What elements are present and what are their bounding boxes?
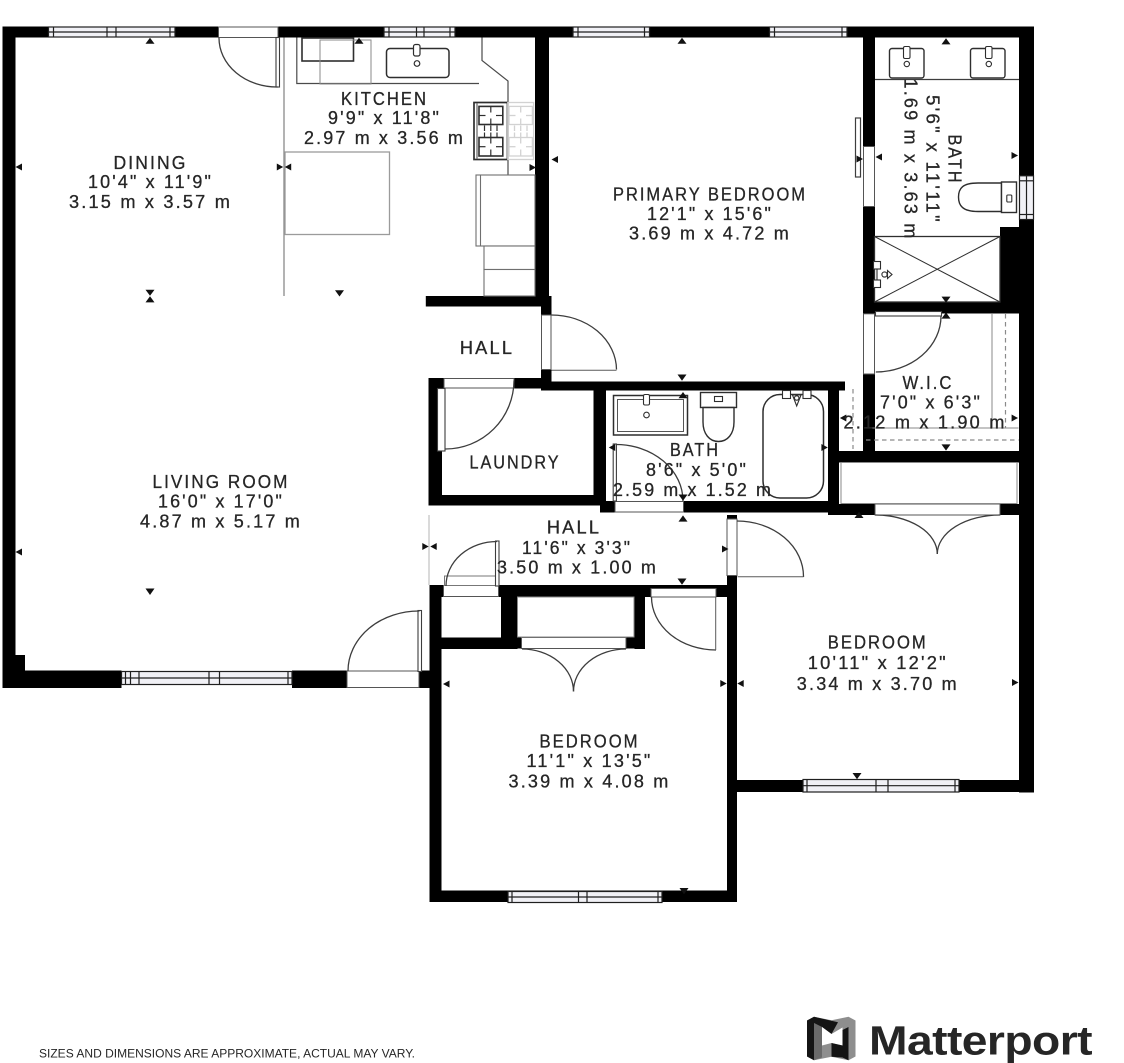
svg-text:LAUNDRY: LAUNDRY <box>470 452 561 472</box>
svg-text:W.I.C: W.I.C <box>903 373 954 393</box>
svg-text:BATH: BATH <box>670 440 720 460</box>
svg-text:BATH: BATH <box>945 135 965 185</box>
svg-text:Matterport: Matterport <box>869 1018 1093 1063</box>
svg-text:3.34 m x 3.70 m: 3.34 m x 3.70 m <box>797 674 959 694</box>
svg-text:9'9" x 11'8": 9'9" x 11'8" <box>328 108 441 128</box>
svg-text:3.69 m x 4.72 m: 3.69 m x 4.72 m <box>629 223 791 243</box>
svg-text:2.12 m x 1.90 m: 2.12 m x 1.90 m <box>844 412 1007 432</box>
svg-text:KITCHEN: KITCHEN <box>341 89 428 109</box>
svg-text:1.69 m x 3.63 m: 1.69 m x 3.63 m <box>901 79 921 241</box>
svg-text:DINING: DINING <box>114 153 188 173</box>
svg-text:2.97 m x 3.56 m: 2.97 m x 3.56 m <box>304 128 465 148</box>
svg-text:HALL: HALL <box>547 517 601 537</box>
svg-text:HALL: HALL <box>460 338 514 358</box>
svg-text:11'6" x 3'3": 11'6" x 3'3" <box>522 538 632 558</box>
svg-text:8'6" x 5'0": 8'6" x 5'0" <box>646 460 748 480</box>
svg-text:2.59 m x 1.52 m: 2.59 m x 1.52 m <box>613 480 773 500</box>
svg-text:4.87 m x 5.17 m: 4.87 m x 5.17 m <box>140 511 302 531</box>
svg-text:11'1" x 13'5": 11'1" x 13'5" <box>527 751 653 771</box>
svg-text:PRIMARY BEDROOM: PRIMARY BEDROOM <box>613 184 807 204</box>
svg-text:BEDROOM: BEDROOM <box>828 632 928 652</box>
svg-text:3.50 m x 1.00 m: 3.50 m x 1.00 m <box>497 557 658 577</box>
svg-text:SIZES AND DIMENSIONS ARE APPRO: SIZES AND DIMENSIONS ARE APPROXIMATE, AC… <box>39 1049 415 1061</box>
svg-text:3.39 m x 4.08 m: 3.39 m x 4.08 m <box>509 771 671 791</box>
svg-text:16'0" x 17'0": 16'0" x 17'0" <box>158 491 284 511</box>
svg-text:12'1" x 15'6": 12'1" x 15'6" <box>647 204 773 224</box>
svg-text:BEDROOM: BEDROOM <box>540 731 640 751</box>
svg-text:10'4" x 11'9": 10'4" x 11'9" <box>88 172 213 192</box>
svg-text:7'0" x 6'3": 7'0" x 6'3" <box>880 393 982 413</box>
svg-text:3.15 m x 3.57 m: 3.15 m x 3.57 m <box>69 192 232 212</box>
svg-text:LIVING ROOM: LIVING ROOM <box>153 472 290 492</box>
svg-text:5'6" x 11'11": 5'6" x 11'11" <box>923 95 943 224</box>
svg-text:10'11" x 12'2": 10'11" x 12'2" <box>808 653 948 673</box>
